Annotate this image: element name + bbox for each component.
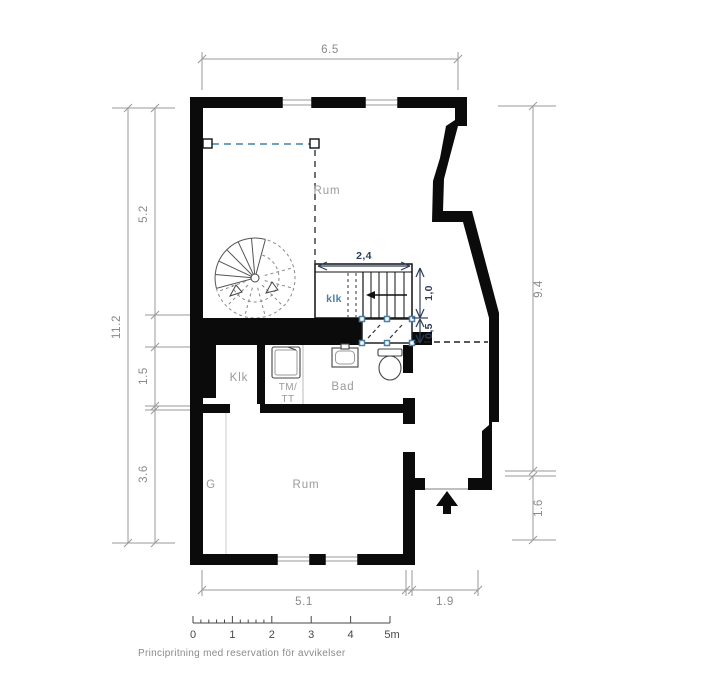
dim-left-lower: 3.6	[138, 465, 150, 483]
laundry-label-line1: TM/	[279, 382, 297, 393]
window-glass	[365, 96, 398, 109]
window-top-left	[282, 96, 312, 109]
dim-left-total: 11.2	[111, 315, 123, 339]
entrance-arrow	[436, 491, 458, 514]
wardrobe-label: G	[206, 479, 216, 491]
dim-left-middle: 1.5	[138, 367, 150, 385]
dim-bottom-entry: 1.9	[436, 596, 454, 608]
room-lower-label: Rum	[293, 479, 320, 491]
scale-label-5m: 5m	[384, 629, 399, 641]
toilet	[378, 349, 402, 380]
dim-left-upper: 5.2	[138, 205, 150, 223]
core-wall-band	[203, 318, 362, 345]
spiral-stair-post	[251, 274, 259, 282]
window-glass	[325, 553, 358, 566]
closet-label: Klk	[230, 372, 249, 384]
laundry-label-line2: TT	[281, 394, 294, 405]
scale-bar-labels: 0 1 2 3 4 5m	[190, 629, 400, 641]
dimension-right: 9.4 1.6	[498, 102, 556, 544]
closet-divider-wall	[257, 345, 265, 404]
guide-square-right	[310, 139, 319, 148]
under-stair-closet-label: klk	[326, 293, 342, 305]
closet-left-wall	[203, 345, 216, 398]
bath-right-wall	[403, 345, 413, 373]
stair-opening-box	[360, 317, 415, 346]
bathroom-label: Bad	[331, 381, 354, 393]
floor-plan-svg: klk	[0, 0, 708, 681]
window-bottom-left	[277, 553, 310, 566]
window-glass	[282, 96, 312, 109]
floor-plan-page: klk	[0, 0, 708, 681]
scale-label-3: 3	[308, 629, 314, 641]
dim-stair-run: 1,0	[423, 285, 435, 301]
window-glass	[277, 553, 310, 566]
room-upper-label: Rum	[314, 185, 341, 197]
lower-room-right-wall	[403, 452, 415, 554]
straight-staircase: klk	[315, 264, 412, 318]
scale-label-2: 2	[269, 629, 275, 641]
dim-top-width: 6.5	[321, 44, 339, 56]
dim-stair-landing: 0,5	[423, 323, 435, 339]
window-bottom-right	[325, 553, 358, 566]
guide-square-left	[203, 139, 212, 148]
washing-machine	[272, 347, 300, 378]
scale-label-1: 1	[229, 629, 235, 641]
disclaimer-text: Principritning med reservation för avvik…	[138, 648, 346, 659]
dimension-left-chain: 5.2 1.5 3.6	[138, 104, 190, 547]
scale-label-0: 0	[190, 629, 196, 641]
dimension-bottom: 5.1 1.9	[198, 570, 482, 608]
wall-cap	[403, 398, 415, 424]
dim-right-main: 9.4	[533, 280, 545, 298]
dimension-top: 6.5	[198, 44, 462, 90]
dim-right-entry: 1.6	[533, 499, 545, 517]
dim-bottom-main: 5.1	[295, 596, 313, 608]
scale-label-4: 4	[348, 629, 354, 641]
dim-stair-width: 2,4	[356, 250, 372, 262]
sink	[332, 344, 358, 367]
scale-bar: 0 1 2 3 4 5m	[190, 616, 400, 641]
hall-wall-segment-left	[203, 404, 230, 413]
window-top-right	[365, 96, 398, 109]
hall-wall-segment-right	[260, 404, 405, 413]
